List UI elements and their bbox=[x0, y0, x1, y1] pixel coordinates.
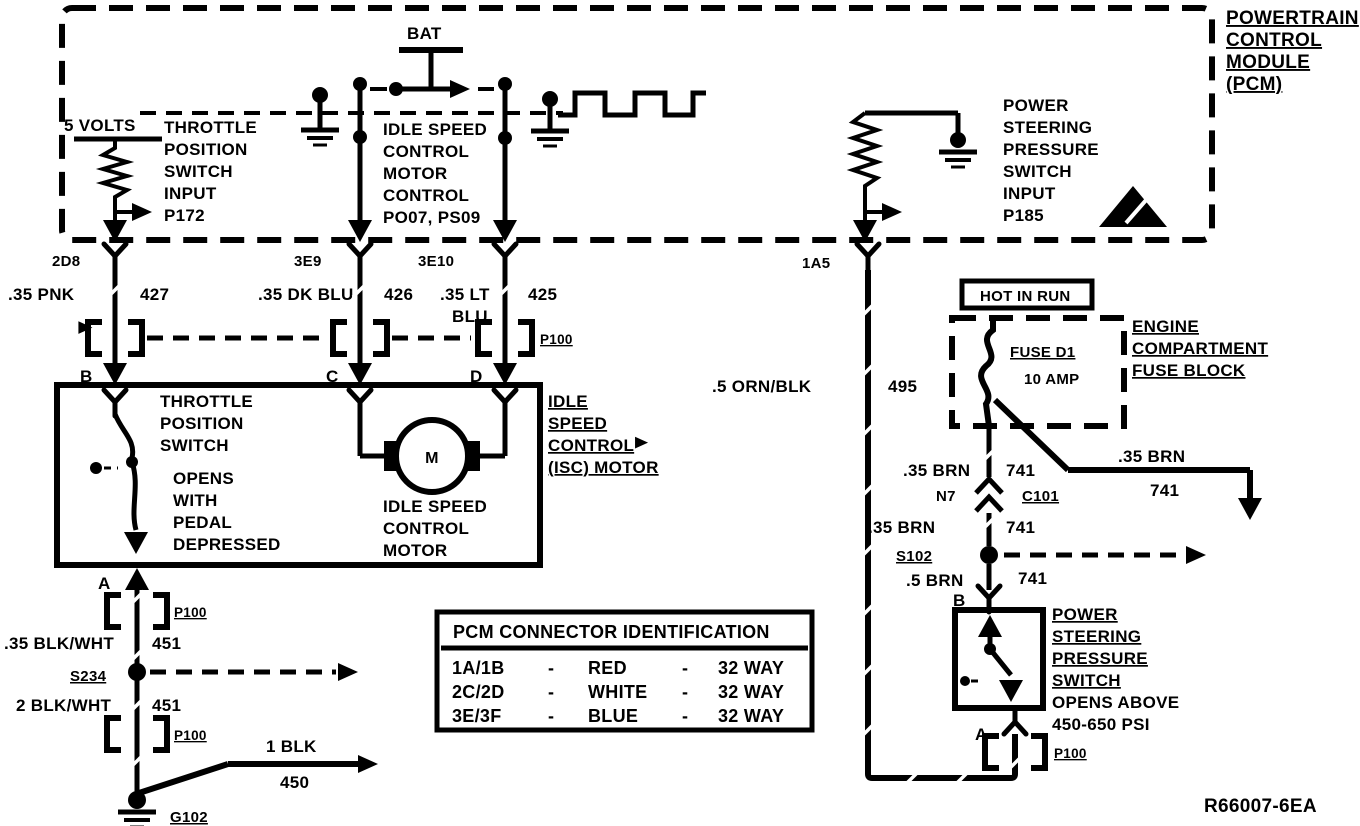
svg-text:-: - bbox=[548, 706, 554, 726]
svg-text:MOTOR: MOTOR bbox=[383, 541, 447, 560]
svg-text:STEERING: STEERING bbox=[1003, 118, 1092, 137]
svg-text:PRESSURE: PRESSURE bbox=[1052, 649, 1148, 668]
svg-text:CONTROL: CONTROL bbox=[1226, 30, 1322, 51]
svg-text:POWER: POWER bbox=[1052, 605, 1118, 624]
branch-arrow-icon bbox=[338, 663, 358, 681]
tps-pullup-circuit: 5 VOLTS bbox=[64, 116, 162, 242]
female-terminal-icon bbox=[104, 244, 126, 270]
splice-s102: S102 bbox=[896, 546, 1206, 565]
driver-ground-icon bbox=[301, 87, 339, 145]
svg-text:-: - bbox=[682, 682, 688, 702]
p100-connector-row: P100 bbox=[88, 322, 573, 354]
wire-circuit: 451 bbox=[152, 634, 181, 653]
svg-text:INPUT: INPUT bbox=[1003, 184, 1056, 203]
connector-half-icon bbox=[976, 479, 1002, 493]
svg-text:PEDAL: PEDAL bbox=[173, 513, 232, 532]
c101-label: C101 bbox=[1022, 488, 1059, 505]
c101-connector: N7 C101 bbox=[936, 479, 1059, 511]
pcm-connector-table: PCM CONNECTOR IDENTIFICATION 1A/1B - RED… bbox=[437, 612, 812, 730]
ground-icon bbox=[118, 812, 156, 826]
isc-motor-label: IDLE SPEED CONTROL MOTOR bbox=[383, 497, 487, 560]
g102-label: G102 bbox=[170, 809, 208, 826]
p100-label: P100 bbox=[1054, 746, 1087, 761]
pcm-module: 5 VOLTS THROTTLE POSITION SWITCH INPUT P… bbox=[62, 8, 1359, 242]
wire-spec: .35 BRN bbox=[868, 518, 935, 537]
table-row: 1A/1B - RED - 32 WAY bbox=[452, 658, 784, 678]
psps-input-circuit bbox=[853, 113, 977, 242]
fuse-block-callout: ENGINE COMPARTMENT FUSE BLOCK bbox=[1132, 317, 1268, 380]
pin-1a5-label: 1A5 bbox=[802, 255, 830, 272]
svg-text:-: - bbox=[548, 682, 554, 702]
svg-text:IDLE SPEED: IDLE SPEED bbox=[383, 120, 487, 139]
wire-circuit: 450 bbox=[280, 773, 309, 792]
blk450-branch: 1 BLK 450 bbox=[139, 737, 378, 793]
pcm-pin-row: 2D8 3E9 3E10 1A5 bbox=[52, 244, 879, 364]
svg-text:PO07, PS09: PO07, PS09 bbox=[383, 208, 481, 227]
wire-circuit: 427 bbox=[140, 285, 169, 304]
splice-s234: S234 bbox=[70, 663, 358, 685]
female-terminal-icon bbox=[494, 244, 516, 270]
five-volts-label: 5 VOLTS bbox=[64, 116, 136, 135]
wire-spec: .5 ORN/BLK bbox=[712, 377, 812, 396]
svg-text:1A/1B: 1A/1B bbox=[452, 658, 505, 678]
svg-text:-: - bbox=[682, 706, 688, 726]
splice-dot-icon bbox=[980, 546, 998, 564]
p100-label: P100 bbox=[174, 605, 207, 620]
pin-3e10-label: 3E10 bbox=[418, 253, 454, 270]
svg-text:POWERTRAIN: POWERTRAIN bbox=[1226, 8, 1359, 29]
wire-circuit: 426 bbox=[384, 285, 413, 304]
svg-text:DEPRESSED: DEPRESSED bbox=[173, 535, 281, 554]
svg-text:POWER: POWER bbox=[1003, 96, 1069, 115]
wire-circuit: 451 bbox=[152, 696, 181, 715]
bat-label: BAT bbox=[407, 24, 442, 43]
fuse-block: FUSE D1 10 AMP bbox=[952, 318, 1124, 426]
tap-arrow-icon bbox=[132, 203, 152, 221]
pin-2d8-label: 2D8 bbox=[52, 253, 80, 270]
terminal-a-label: A bbox=[98, 574, 111, 593]
splice-dot-icon bbox=[128, 663, 146, 681]
reference-number: R66007-6EA bbox=[1204, 796, 1317, 817]
svg-text:2C/2D: 2C/2D bbox=[452, 682, 505, 702]
svg-text:32 WAY: 32 WAY bbox=[718, 658, 784, 678]
driver-ground-icon bbox=[531, 91, 569, 146]
square-wave-icon bbox=[558, 93, 706, 115]
p100-label: P100 bbox=[540, 332, 573, 347]
svg-text:FUSE BLOCK: FUSE BLOCK bbox=[1132, 361, 1246, 380]
svg-text:SWITCH: SWITCH bbox=[1052, 671, 1121, 690]
hot-in-run-label: HOT IN RUN bbox=[980, 288, 1071, 305]
wire-spec: .35 BRN bbox=[1118, 447, 1185, 466]
table-row: 2C/2D - WHITE - 32 WAY bbox=[452, 682, 784, 702]
s234-label: S234 bbox=[70, 668, 107, 685]
svg-text:CONTROL: CONTROL bbox=[383, 186, 469, 205]
svg-text:WITH: WITH bbox=[173, 491, 218, 510]
wire-spec: .35 PNK bbox=[8, 285, 75, 304]
wire-circuit: 741 bbox=[1006, 461, 1035, 480]
svg-text:INPUT: INPUT bbox=[164, 184, 217, 203]
tps-switch-label: THROTTLE POSITION SWITCH bbox=[160, 392, 253, 455]
wire-spec: .5 BRN bbox=[906, 571, 964, 590]
halftone-highlights bbox=[155, 40, 1143, 229]
svg-text:POSITION: POSITION bbox=[164, 140, 248, 159]
svg-text:MOTOR: MOTOR bbox=[383, 164, 447, 183]
svg-text:WHITE: WHITE bbox=[588, 682, 648, 702]
svg-text:OPENS ABOVE: OPENS ABOVE bbox=[1052, 693, 1179, 712]
svg-text:STEERING: STEERING bbox=[1052, 627, 1141, 646]
svg-text:THROTTLE: THROTTLE bbox=[164, 118, 257, 137]
wire-spec: 1 BLK bbox=[266, 737, 317, 756]
female-terminal-icon bbox=[104, 390, 126, 416]
pin-3e9-label: 3E9 bbox=[294, 253, 322, 270]
svg-text:CONTROL: CONTROL bbox=[383, 519, 469, 538]
pin-arrow-icon bbox=[493, 363, 517, 385]
wiring-diagram-canvas: 5 VOLTS THROTTLE POSITION SWITCH INPUT P… bbox=[0, 0, 1360, 826]
motor-m-label: M bbox=[425, 450, 439, 467]
svg-text:MODULE: MODULE bbox=[1226, 52, 1310, 73]
svg-text:-: - bbox=[548, 658, 554, 678]
svg-text:P185: P185 bbox=[1003, 206, 1044, 225]
ground-icon bbox=[939, 152, 977, 167]
svg-text:CONTROL: CONTROL bbox=[548, 436, 634, 455]
branch-arrow-icon bbox=[358, 755, 378, 773]
svg-text:POSITION: POSITION bbox=[160, 414, 244, 433]
svg-text:OPENS: OPENS bbox=[173, 469, 234, 488]
isc-callout: IDLE SPEED CONTROL (ISC) MOTOR bbox=[548, 392, 659, 477]
female-terminal-icon bbox=[1004, 708, 1026, 734]
table-title: PCM CONNECTOR IDENTIFICATION bbox=[453, 622, 770, 642]
wire-circuit: 495 bbox=[888, 377, 917, 396]
svg-text:(PCM): (PCM) bbox=[1226, 74, 1282, 95]
tps-isc-box: THROTTLE POSITION SWITCH OPENS WITH PEDA… bbox=[57, 321, 540, 565]
svg-text:32 WAY: 32 WAY bbox=[718, 706, 784, 726]
fuse-name-label: FUSE D1 bbox=[1010, 344, 1075, 361]
svg-text:-: - bbox=[682, 658, 688, 678]
wire-circuit: 425 bbox=[528, 285, 557, 304]
isc-control-label: IDLE SPEED CONTROL MOTOR CONTROL PO07, P… bbox=[383, 120, 487, 227]
wiring-diagram-page: 5 VOLTS THROTTLE POSITION SWITCH INPUT P… bbox=[0, 0, 1360, 826]
svg-text:IDLE SPEED: IDLE SPEED bbox=[383, 497, 487, 516]
fuse-icon bbox=[981, 318, 993, 426]
svg-text:THROTTLE: THROTTLE bbox=[160, 392, 253, 411]
wire-spec: .35 DK BLU bbox=[258, 285, 354, 304]
wire-spec: 2 BLK/WHT bbox=[16, 696, 112, 715]
svg-text:PRESSURE: PRESSURE bbox=[1003, 140, 1099, 159]
p100-inline-connector: P100 bbox=[985, 736, 1087, 768]
svg-text:IDLE: IDLE bbox=[548, 392, 588, 411]
p100-inline-connector: P100 bbox=[107, 718, 207, 750]
wire-spec: .35 LT bbox=[440, 285, 490, 304]
svg-text:RED: RED bbox=[588, 658, 627, 678]
svg-text:ENGINE: ENGINE bbox=[1132, 317, 1199, 336]
tps-input-label: THROTTLE POSITION SWITCH INPUT P172 bbox=[164, 118, 257, 225]
svg-text:32 WAY: 32 WAY bbox=[718, 682, 784, 702]
actuator-arrow-icon bbox=[635, 437, 648, 449]
svg-text:SWITCH: SWITCH bbox=[164, 162, 233, 181]
n7-terminal-label: N7 bbox=[936, 488, 956, 505]
s102-label: S102 bbox=[896, 548, 932, 565]
p100-label: P100 bbox=[174, 728, 207, 743]
tps-ground-leg: A P100 .35 BLK/WHT 451 S234 2 BLK/WHT 45… bbox=[4, 568, 378, 826]
wire-circuit: 741 bbox=[1018, 569, 1047, 588]
branch-arrow-icon bbox=[1238, 498, 1262, 520]
female-terminal-icon bbox=[349, 244, 371, 270]
wire-spec: .35 BRN bbox=[903, 461, 970, 480]
svg-text:(ISC) MOTOR: (ISC) MOTOR bbox=[548, 458, 659, 477]
bat-arrow-icon bbox=[450, 80, 470, 98]
bat-feed: BAT bbox=[370, 24, 494, 98]
branch-arrow-icon bbox=[1186, 546, 1206, 564]
triangle-marker-icon bbox=[1099, 186, 1167, 227]
pin-arrow-icon bbox=[103, 363, 127, 385]
wire-spec: .35 BLK/WHT bbox=[4, 634, 114, 653]
svg-text:BLUE: BLUE bbox=[588, 706, 638, 726]
connector-half-icon bbox=[976, 497, 1002, 511]
svg-text:P172: P172 bbox=[164, 206, 205, 225]
svg-text:450-650 PSI: 450-650 PSI bbox=[1052, 715, 1150, 734]
p100-inline-connector: P100 bbox=[107, 595, 207, 627]
svg-text:3E/3F: 3E/3F bbox=[452, 706, 502, 726]
svg-text:SPEED: SPEED bbox=[548, 414, 607, 433]
svg-text:COMPARTMENT: COMPARTMENT bbox=[1132, 339, 1268, 358]
wire-circuit: 741 bbox=[1150, 481, 1179, 500]
fuse-amp-label: 10 AMP bbox=[1024, 371, 1079, 388]
hot-in-run-box: HOT IN RUN bbox=[962, 281, 1092, 308]
svg-text:SWITCH: SWITCH bbox=[1003, 162, 1072, 181]
pcm-title: POWERTRAIN CONTROL MODULE (PCM) bbox=[1226, 8, 1359, 95]
tap-arrow-icon bbox=[882, 203, 902, 221]
psps-callout: POWER STEERING PRESSURE SWITCH OPENS ABO… bbox=[1052, 605, 1179, 734]
wire-circuit: 741 bbox=[1006, 518, 1035, 537]
resistor-icon bbox=[853, 113, 877, 226]
female-terminal-icon bbox=[857, 244, 879, 270]
ground-g102: G102 bbox=[118, 791, 208, 826]
svg-text:SWITCH: SWITCH bbox=[160, 436, 229, 455]
pin-arrow-icon bbox=[348, 363, 372, 385]
pin-arrow-icon bbox=[125, 568, 149, 590]
svg-text:CONTROL: CONTROL bbox=[383, 142, 469, 161]
